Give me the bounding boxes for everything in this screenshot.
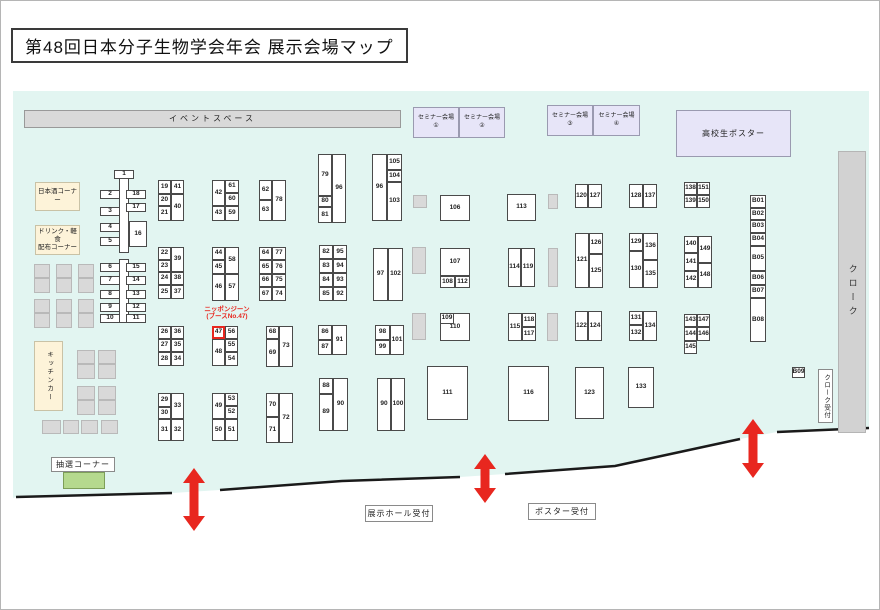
booth-64: 64 (259, 247, 272, 260)
booth-139: 139 (684, 195, 697, 208)
booth-11: 11 (126, 314, 146, 323)
booth-85: 85 (319, 287, 333, 301)
booth-72: 72 (279, 393, 293, 443)
seminar-room-1-label: セミナー会場 (418, 115, 454, 123)
exhibit-hall-reception-label: 展示ホール受付 (365, 505, 433, 522)
booth-87: 87 (318, 340, 332, 355)
booth-B05: B05 (750, 246, 766, 271)
booth-56: 56 (225, 326, 238, 339)
booth-4: 4 (100, 223, 120, 232)
booth-130: 130 (629, 251, 643, 288)
table-box (56, 313, 72, 328)
seminar-room-2: セミナー会場② (459, 107, 505, 138)
booth-121: 121 (575, 233, 589, 288)
table-box (77, 350, 95, 364)
booth-58: 58 (225, 247, 239, 274)
nippon-gene-highlight-label: ニッポンジーン(ブースNo.47) (194, 305, 260, 321)
seminar-room-1-label2: ① (433, 123, 438, 131)
booth-51: 51 (225, 419, 238, 441)
booth-66: 66 (259, 274, 272, 287)
seminar-room-2-label: セミナー会場 (464, 115, 500, 123)
nippon-gene-highlight-label-label2: (ブースNo.47) (206, 313, 247, 320)
poster-reception-label: ポスター受付 (528, 503, 596, 520)
booth-116: 116 (508, 366, 549, 421)
booth-34: 34 (171, 352, 184, 366)
booth-77: 77 (272, 247, 286, 260)
table-box (42, 420, 61, 434)
booth-124: 124 (588, 311, 602, 341)
booth-17: 17 (126, 203, 146, 212)
booth-99: 99 (375, 340, 390, 355)
booth-122: 122 (575, 311, 588, 341)
booth-101: 101 (390, 325, 404, 355)
booth-54: 54 (225, 352, 238, 366)
booth-145: 145 (684, 341, 697, 354)
lottery-corner-booth (63, 472, 105, 489)
sake-corner-label: 日本酒コーナー (36, 188, 79, 204)
booth-95: 95 (333, 245, 347, 259)
booth-30: 30 (158, 407, 171, 419)
booth-88: 88 (319, 378, 333, 394)
table-box (98, 350, 116, 364)
booth-68: 68 (266, 326, 279, 339)
booth-B01: B01 (750, 195, 766, 208)
table-box (56, 264, 72, 278)
table-box (548, 194, 558, 209)
booth-49: 49 (212, 393, 225, 419)
highschool-poster-area: 高校生ポスター (676, 110, 791, 157)
booth-113: 113 (507, 194, 536, 221)
booth-97: 97 (373, 248, 388, 301)
table-box (34, 313, 50, 328)
booth-60: 60 (225, 193, 239, 206)
table-box (34, 278, 50, 293)
booth-59: 59 (225, 206, 239, 221)
exhibition-map-page: 第48回日本分子生物学会年会 展示会場マップ 12183174165615714… (0, 0, 880, 610)
hall-map: 1218317416561571481391210111941204021223… (1, 1, 879, 609)
booth-15: 15 (126, 263, 146, 272)
booth-71: 71 (266, 417, 279, 443)
table-box (412, 313, 426, 340)
booth-126: 126 (589, 233, 603, 254)
booth-spine-connector (119, 177, 129, 253)
booth-63: 63 (259, 200, 272, 221)
booth-6: 6 (100, 263, 120, 272)
booth-115: 115 (508, 313, 522, 341)
booth-131: 131 (629, 311, 643, 325)
booth-7: 7 (100, 276, 120, 285)
cloak-reception-label: クローク受付 (821, 374, 829, 419)
booth-117: 117 (522, 327, 536, 341)
cloak-area: クローク (838, 151, 866, 433)
cloak-reception: クローク受付 (818, 369, 833, 423)
booth-81: 81 (318, 207, 332, 223)
table-box (77, 364, 95, 379)
table-box (77, 400, 95, 415)
booth-53: 53 (225, 393, 238, 406)
booth-39: 39 (171, 247, 184, 272)
booth-102: 102 (388, 248, 403, 301)
booth-69: 69 (266, 339, 279, 367)
booth-31: 31 (158, 419, 171, 441)
booth-24: 24 (158, 272, 171, 285)
booth-106: 106 (440, 195, 470, 221)
booth-32: 32 (171, 419, 184, 441)
booth-96: 96 (372, 154, 387, 221)
booth-57: 57 (225, 274, 239, 301)
booth-B06: B06 (750, 271, 766, 285)
lottery-corner-label: 抽選コーナー (51, 457, 115, 472)
table-box (548, 248, 558, 287)
booth-50: 50 (212, 419, 225, 441)
table-box (412, 247, 426, 274)
booth-33: 33 (171, 393, 184, 419)
booth-146: 146 (697, 327, 710, 341)
booth-79: 79 (318, 154, 332, 196)
booth-150: 150 (697, 195, 710, 208)
booth-61: 61 (225, 180, 239, 193)
table-box (56, 299, 72, 313)
booth-43: 43 (212, 206, 225, 221)
kitchen-car: キッチンカー (34, 341, 63, 411)
booth-45: 45 (212, 260, 225, 274)
booth-13: 13 (126, 290, 146, 299)
booth-8: 8 (100, 290, 120, 299)
booth-151: 151 (697, 182, 710, 195)
booth-B04: B04 (750, 233, 766, 246)
booth-42: 42 (212, 180, 225, 206)
booth-84: 84 (319, 273, 333, 287)
booth-140: 140 (684, 236, 698, 253)
booth-29: 29 (158, 393, 171, 407)
booth-3: 3 (100, 207, 120, 216)
booth-143: 143 (684, 314, 697, 327)
booth-83: 83 (319, 259, 333, 273)
booth-135: 135 (643, 260, 658, 288)
booth-62: 62 (259, 180, 272, 200)
booth-10: 10 (100, 314, 120, 323)
booth-21: 21 (158, 206, 171, 221)
booth-19: 19 (158, 180, 171, 194)
seminar-room-4-label2: ④ (614, 121, 619, 129)
booth-86: 86 (318, 325, 332, 340)
exhibit-hall-reception-label-label: 展示ホール受付 (368, 509, 431, 519)
booth-27: 27 (158, 339, 171, 352)
booth-36: 36 (171, 326, 184, 339)
booth-105: 105 (387, 154, 402, 170)
booth-20: 20 (158, 194, 171, 206)
booth-B07: B07 (750, 285, 766, 298)
booth-100: 100 (391, 378, 405, 431)
seminar-room-2-label2: ② (479, 123, 484, 131)
booth-93: 93 (333, 273, 347, 287)
lottery-corner-label-label: 抽選コーナー (56, 460, 110, 470)
table-box (63, 420, 79, 434)
booth-18: 18 (126, 190, 146, 199)
booth-47: 47 (212, 326, 225, 339)
table-box (81, 420, 98, 434)
booth-134: 134 (643, 311, 657, 341)
booth-120: 120 (575, 184, 588, 208)
booth-127: 127 (588, 184, 602, 208)
booth-23: 23 (158, 260, 171, 272)
booth-137: 137 (643, 184, 657, 208)
booth-104: 104 (387, 170, 402, 182)
seminar-room-3: セミナー会場③ (547, 105, 593, 136)
drink-snack-corner-label2: 配布コーナー (38, 244, 77, 252)
booth-92: 92 (333, 287, 347, 301)
booth-107: 107 (440, 248, 470, 276)
booth-35: 35 (171, 339, 184, 352)
booth-2: 2 (100, 190, 120, 199)
booth-14: 14 (126, 276, 146, 285)
table-box (98, 386, 116, 400)
booth-80: 80 (318, 196, 332, 207)
booth-38: 38 (171, 272, 184, 285)
booth-129: 129 (629, 233, 643, 251)
booth-138: 138 (684, 182, 697, 195)
event-space-banner: イベントスペース (24, 110, 401, 128)
booth-91: 91 (332, 325, 347, 355)
table-box (98, 400, 116, 415)
booth-26: 26 (158, 326, 171, 339)
seminar-room-1: セミナー会場① (413, 107, 459, 138)
booth-B08: B08 (750, 298, 766, 342)
kitchen-car-label: キッチンカー (44, 351, 52, 402)
booth-16: 16 (129, 221, 147, 247)
table-box (77, 386, 95, 400)
booth-B09: B09 (792, 367, 805, 378)
seminar-room-3-label2: ③ (567, 121, 572, 129)
booth-76: 76 (272, 260, 286, 274)
booth-98: 98 (375, 325, 390, 340)
booth-96: 96 (332, 154, 346, 223)
table-box (98, 364, 116, 379)
seminar-room-4-label: セミナー会場 (598, 113, 634, 121)
booth-B03: B03 (750, 220, 766, 233)
drink-snack-corner-label: ドリンク・軽食 (36, 228, 79, 244)
event-space-banner-label: イベントスペース (169, 114, 256, 124)
poster-reception-label-label: ポスター受付 (535, 507, 589, 517)
booth-142: 142 (684, 271, 698, 288)
cloak-area-label: クローク (846, 264, 857, 320)
table-box (78, 278, 94, 293)
booth-132: 132 (629, 325, 643, 341)
booth-94: 94 (333, 259, 347, 273)
booth-46: 46 (212, 274, 225, 301)
booth-52: 52 (225, 406, 238, 419)
booth-1: 1 (114, 170, 134, 179)
booth-70: 70 (266, 393, 279, 417)
booth-89: 89 (319, 394, 333, 431)
booth-12: 12 (126, 303, 146, 312)
booth-25: 25 (158, 285, 171, 299)
booth-109: 109 (440, 313, 454, 324)
booth-141: 141 (684, 253, 698, 271)
table-box (78, 299, 94, 313)
booth-136: 136 (643, 233, 658, 260)
booth-123: 123 (575, 367, 604, 419)
table-box (78, 264, 94, 278)
booth-28: 28 (158, 352, 171, 366)
nippon-gene-highlight-label-label: ニッポンジーン (204, 306, 249, 313)
seminar-room-3-label: セミナー会場 (552, 113, 588, 121)
booth-22: 22 (158, 247, 171, 260)
highschool-poster-area-label: 高校生ポスター (702, 129, 765, 139)
booth-74: 74 (272, 287, 286, 301)
booth-41: 41 (171, 180, 184, 194)
booth-103: 103 (387, 182, 402, 221)
table-box (101, 420, 118, 434)
booth-119: 119 (521, 248, 535, 287)
sake-corner: 日本酒コーナー (35, 182, 80, 211)
table-box (78, 313, 94, 328)
booth-37: 37 (171, 285, 184, 299)
booth-108: 108 (440, 276, 455, 288)
table-box (34, 264, 50, 278)
booth-9: 9 (100, 303, 120, 312)
booth-75: 75 (272, 274, 286, 287)
booth-111: 111 (427, 366, 468, 420)
table-box (547, 313, 558, 341)
booth-148: 148 (698, 263, 712, 288)
booth-82: 82 (319, 245, 333, 259)
booth-73: 73 (279, 326, 293, 367)
seminar-room-4: セミナー会場④ (593, 105, 640, 136)
booth-78: 78 (272, 180, 286, 221)
table-box (56, 278, 72, 293)
booth-128: 128 (629, 184, 643, 208)
booth-133: 133 (628, 367, 654, 408)
table-box (34, 299, 50, 313)
booth-144: 144 (684, 327, 697, 341)
booth-125: 125 (589, 254, 603, 288)
booth-118: 118 (522, 313, 536, 327)
booth-40: 40 (171, 194, 184, 221)
booth-149: 149 (698, 236, 712, 263)
booth-112: 112 (455, 276, 470, 288)
booth-65: 65 (259, 260, 272, 274)
booth-44: 44 (212, 247, 225, 260)
booth-B02: B02 (750, 208, 766, 220)
booth-147: 147 (697, 314, 710, 327)
booth-5: 5 (100, 237, 120, 246)
booth-90: 90 (333, 378, 348, 431)
booth-55: 55 (225, 339, 238, 352)
booth-114: 114 (508, 248, 521, 287)
booth-90: 90 (377, 378, 391, 431)
drink-snack-corner: ドリンク・軽食配布コーナー (35, 225, 80, 255)
table-box (413, 195, 427, 208)
booth-48: 48 (212, 339, 225, 366)
booth-67: 67 (259, 287, 272, 301)
